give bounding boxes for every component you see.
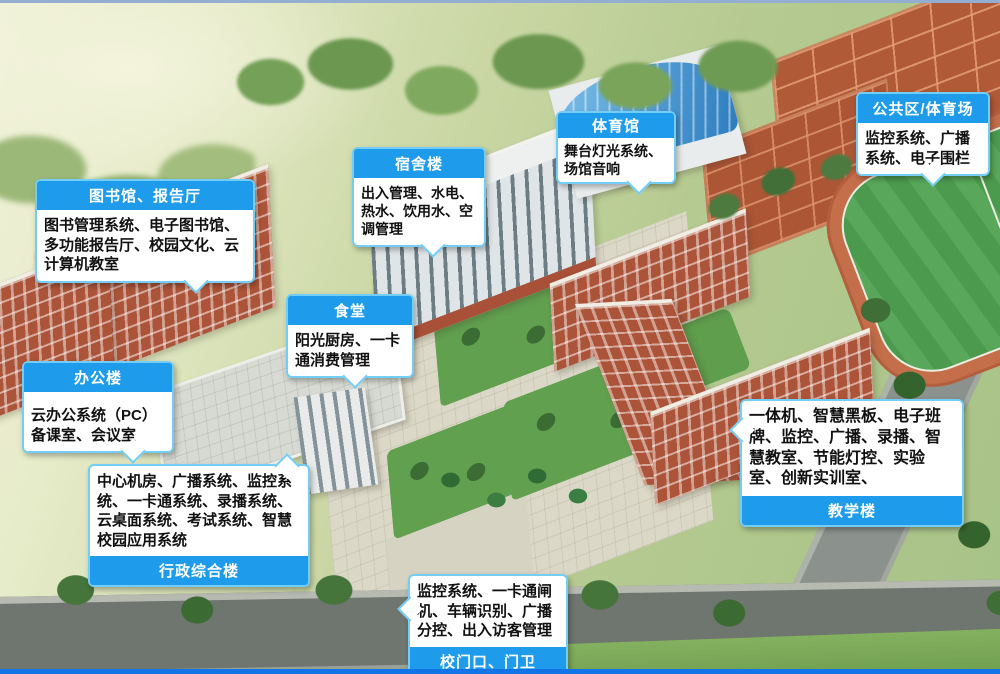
callout-dormitory: 宿舍楼 出入管理、水电、热水、饮用水、空调管理 <box>352 147 486 247</box>
trees-top <box>225 16 795 136</box>
callout-public-stadium: 公共区/体育场 监控系统、广播系统、电子围栏 <box>856 92 990 176</box>
palm-trees <box>425 448 595 528</box>
callout-office-building: 办公楼 云办公系统（PC）备课室、会议室 <box>22 361 174 453</box>
bottom-border-line <box>0 669 1000 674</box>
callout-office-building-body: 云办公系统（PC）备课室、会议室 <box>24 392 172 451</box>
callout-library-body: 图书管理系统、电子图书馆、多功能报告厅、校园文化、云计算机教室 <box>37 210 253 281</box>
top-border-line <box>0 0 1000 3</box>
callout-gymnasium-title: 体育馆 <box>558 113 674 138</box>
callout-public-stadium-body: 监控系统、广播系统、电子围栏 <box>858 123 988 174</box>
callout-admin-building: 中心机房、广播系统、监控系统、一卡通系统、录播系统、云桌面系统、考试系统、智慧校… <box>88 464 310 587</box>
callout-library: 图书馆、报告厅 图书管理系统、电子图书馆、多功能报告厅、校园文化、云计算机教室 <box>35 179 255 283</box>
callout-office-building-title: 办公楼 <box>24 363 172 392</box>
callout-dormitory-body: 出入管理、水电、热水、饮用水、空调管理 <box>354 178 484 245</box>
callout-gymnasium-body: 舞台灯光系统、场馆音响 <box>558 138 674 182</box>
callout-library-title: 图书馆、报告厅 <box>37 181 253 210</box>
callout-teaching-building: 一体机、智慧黑板、电子班牌、监控、广播、录播、智慧教室、节能灯控、实验室、创新实… <box>740 399 964 527</box>
callout-gymnasium: 体育馆 舞台灯光系统、场馆音响 <box>556 111 676 184</box>
callout-admin-building-title: 行政综合楼 <box>90 556 308 585</box>
callout-school-gate: 监控系统、一卡通闸机、车辆识别、广播分控、出入访客管理 校门口、门卫 <box>408 574 568 674</box>
callout-school-gate-body: 监控系统、一卡通闸机、车辆识别、广播分控、出入访客管理 <box>410 576 566 647</box>
callout-teaching-building-body: 一体机、智慧黑板、电子班牌、监控、广播、录播、智慧教室、节能灯控、实验室、创新实… <box>742 401 962 496</box>
callout-admin-building-body: 中心机房、广播系统、监控系统、一卡通系统、录播系统、云桌面系统、考试系统、智慧校… <box>90 466 308 556</box>
callout-canteen: 食堂 阳光厨房、一卡通消费管理 <box>286 294 414 378</box>
callout-public-stadium-title: 公共区/体育场 <box>858 94 988 123</box>
campus-smart-systems-diagram: 图书馆、报告厅 图书管理系统、电子图书馆、多功能报告厅、校园文化、云计算机教室 … <box>0 0 1000 674</box>
callout-dormitory-title: 宿舍楼 <box>354 149 484 178</box>
callout-canteen-title: 食堂 <box>288 296 412 325</box>
callout-teaching-building-title: 教学楼 <box>742 496 962 525</box>
